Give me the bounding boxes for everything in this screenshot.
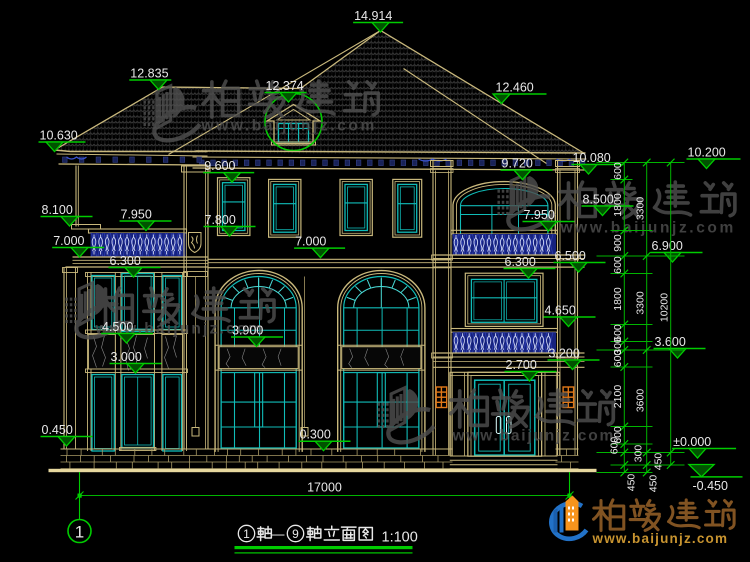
svg-text:9.600: 9.600 (204, 159, 235, 173)
svg-text:9.720: 9.720 (502, 157, 533, 171)
svg-text:www.baijunjz.com: www.baijunjz.com (201, 118, 377, 135)
svg-text:10200: 10200 (658, 293, 670, 322)
svg-text:450: 450 (648, 475, 660, 493)
svg-text:9: 9 (292, 527, 299, 541)
svg-text:±0.000: ±0.000 (673, 435, 711, 449)
svg-text:1: 1 (243, 527, 250, 541)
svg-text:www.baijunjz.com: www.baijunjz.com (592, 531, 729, 546)
svg-text:600: 600 (612, 350, 624, 368)
svg-text:1:100: 1:100 (382, 530, 418, 546)
svg-text:4.650: 4.650 (545, 304, 576, 318)
svg-text:300: 300 (633, 445, 645, 463)
svg-text:3300: 3300 (634, 197, 646, 221)
svg-text:1: 1 (75, 523, 84, 542)
svg-text:-0.450: -0.450 (693, 479, 728, 493)
svg-text:17000: 17000 (307, 481, 342, 495)
svg-text:12.460: 12.460 (496, 81, 534, 95)
svg-text:6.300: 6.300 (110, 254, 141, 268)
svg-text:2.700: 2.700 (506, 358, 537, 372)
svg-text:10.200: 10.200 (688, 146, 726, 160)
svg-text:3.000: 3.000 (111, 350, 142, 364)
svg-text:1800: 1800 (612, 193, 624, 217)
svg-text:7.000: 7.000 (53, 234, 84, 248)
svg-text:0.450: 0.450 (42, 423, 73, 437)
svg-text:www.baijunjz.com: www.baijunjz.com (452, 428, 616, 445)
svg-text:12.835: 12.835 (130, 67, 168, 81)
svg-text:8.100: 8.100 (42, 203, 73, 217)
svg-text:6.300: 6.300 (505, 255, 536, 269)
svg-text:2100: 2100 (612, 385, 624, 409)
svg-text:900: 900 (612, 234, 624, 252)
svg-text:0.300: 0.300 (300, 428, 331, 442)
svg-text:7.800: 7.800 (205, 213, 236, 227)
svg-text:3300: 3300 (634, 291, 646, 315)
svg-text:7.950: 7.950 (524, 208, 555, 222)
svg-text:3.600: 3.600 (655, 335, 686, 349)
svg-text:6.500: 6.500 (555, 249, 586, 263)
svg-text:450: 450 (626, 474, 638, 492)
svg-text:600: 600 (612, 256, 624, 274)
svg-text:10.630: 10.630 (40, 129, 78, 143)
svg-text:6.900: 6.900 (652, 239, 683, 253)
svg-text:14.914: 14.914 (354, 9, 392, 23)
svg-text:450: 450 (653, 453, 665, 471)
svg-text:600: 600 (609, 437, 621, 455)
svg-text:www.baijunjz.com: www.baijunjz.com (560, 220, 736, 237)
svg-text:8.500: 8.500 (583, 193, 614, 207)
svg-text:3.200: 3.200 (549, 347, 580, 361)
svg-text:3600: 3600 (634, 389, 646, 413)
svg-text:—: — (271, 526, 285, 542)
svg-text:600: 600 (612, 162, 624, 180)
svg-text:12.374: 12.374 (266, 79, 304, 93)
svg-text:7.950: 7.950 (121, 208, 152, 222)
svg-text:3.900: 3.900 (232, 324, 263, 338)
svg-text:4.500: 4.500 (102, 320, 133, 334)
svg-text:7.000: 7.000 (295, 235, 326, 249)
svg-text:1800: 1800 (612, 287, 624, 311)
